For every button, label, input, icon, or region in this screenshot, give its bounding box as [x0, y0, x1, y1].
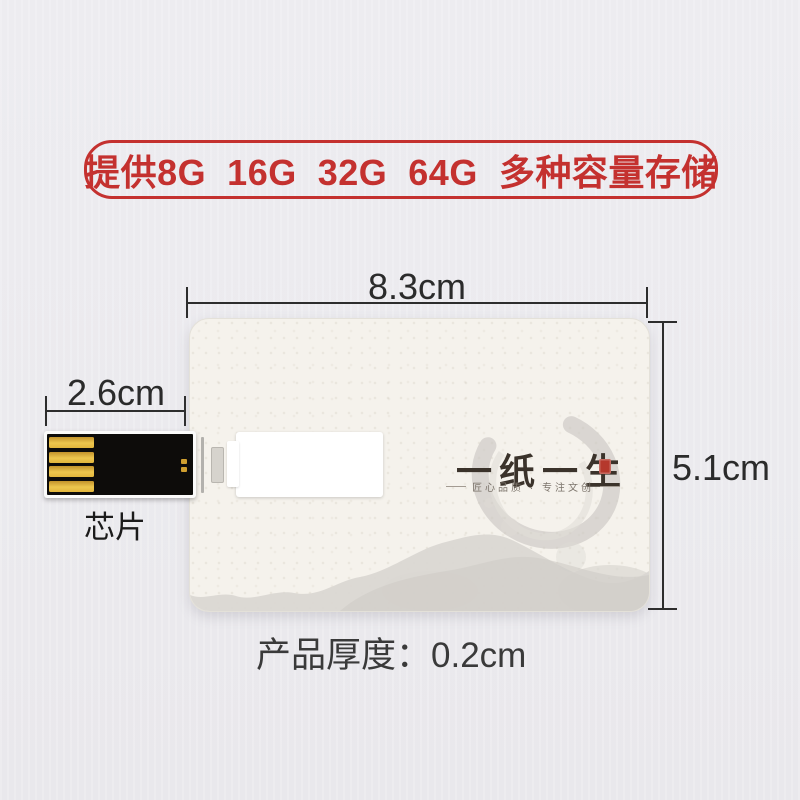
dimension-line-horizontal [46, 410, 185, 412]
subtitle-rule-left [446, 486, 466, 487]
usb-contact-pad [49, 481, 94, 492]
dimension-tick [648, 321, 677, 323]
dimension-tick [186, 287, 188, 318]
thickness-label: 产品厚度： [256, 636, 431, 675]
subtitle-rule-right [600, 486, 620, 487]
chip-solder-dot [181, 467, 187, 472]
dimension-tick [184, 396, 186, 426]
hinge-line [201, 437, 204, 493]
capacity-banner-text: 提供8G 16G 32G 64G 多种容量存储 [84, 144, 718, 196]
usb-contact-pad [49, 437, 94, 448]
chip-solder-dot [181, 459, 187, 464]
card-logo-subtitle: 匠心品质 · 专注文创 [472, 479, 594, 494]
hinge-hole [211, 447, 224, 483]
card-logo-subtitle-row: 匠心品质 · 专注文创 [448, 479, 618, 493]
dimension-tick [646, 287, 648, 318]
dimension-tick [45, 396, 47, 426]
product-diagram-page: 提供8G 16G 32G 64G 多种容量存储 8.3cm 5.1cm 2.6c… [0, 0, 800, 800]
usb-slot-cutout [236, 432, 383, 497]
dimension-line-vertical [662, 322, 664, 610]
chip-label: 芯片 [84, 502, 146, 547]
usb-contact-pads [49, 437, 94, 492]
seal-stamp-icon [599, 459, 611, 474]
usb-chip-body [47, 434, 193, 495]
usb-slot-tab [227, 441, 239, 487]
usb-chip [44, 431, 196, 498]
capacity-banner: 提供8G 16G 32G 64G 多种容量存储 [84, 140, 718, 199]
dimension-card-height-value: 5.1cm [672, 447, 770, 489]
thickness-note: 产品厚度：0.2cm [256, 627, 526, 678]
dimension-tick [648, 608, 677, 610]
thickness-value: 0.2cm [431, 636, 526, 675]
dimension-chip-width-value: 2.6cm [67, 372, 165, 414]
usb-contact-pad [49, 452, 94, 463]
usb-contact-pad [49, 466, 94, 477]
dimension-line-horizontal [187, 302, 648, 304]
